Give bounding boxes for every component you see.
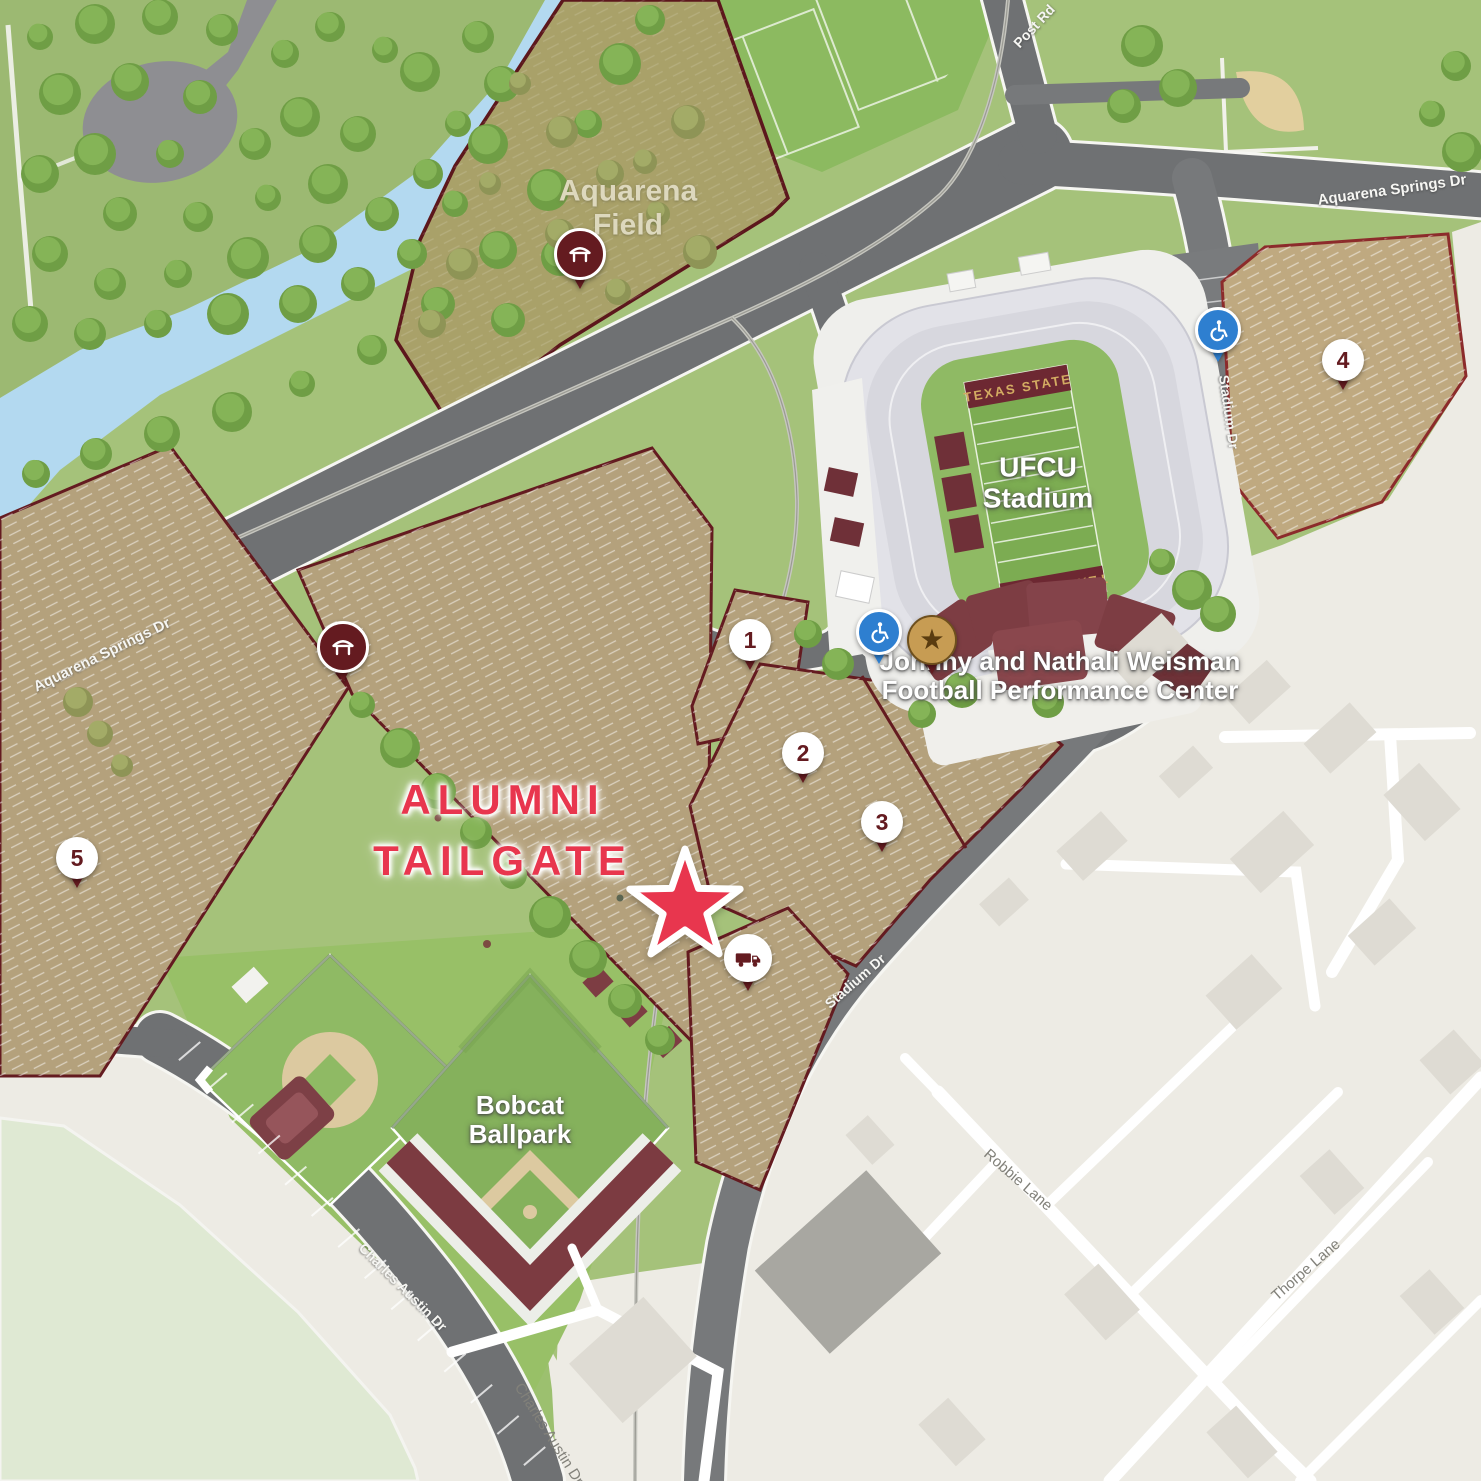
parking-pin-2-number: 2: [782, 732, 824, 774]
accessible-icon: [867, 620, 891, 644]
performance-center-label-line2: Football Performance Center: [880, 676, 1241, 705]
parking-pin-1[interactable]: 1: [729, 619, 771, 661]
alumni-tailgate-label-line2: TAILGATE: [373, 831, 633, 892]
star-icon: ★: [921, 625, 943, 655]
parking-pin-4-number: 4: [1322, 339, 1364, 381]
tent-pin-aquarena-field[interactable]: [554, 228, 606, 280]
rv-parking-pin[interactable]: [724, 934, 772, 982]
map-terrain: TEXAS STATE TEXAS STATE: [0, 0, 1481, 1481]
tent-icon: [330, 634, 356, 660]
accessible-parking-pin-east[interactable]: [1195, 307, 1241, 353]
bobcat-ballpark-label-line2: Ballpark: [469, 1120, 572, 1149]
bobcat-ballpark-label: Bobcat Ballpark: [469, 1091, 572, 1149]
tent-pin-west-lot[interactable]: [317, 621, 369, 673]
parking-pin-3[interactable]: 3: [861, 801, 903, 843]
parking-pin-3-number: 3: [861, 801, 903, 843]
parking-pin-2[interactable]: 2: [782, 732, 824, 774]
parking-pin-5-number: 5: [56, 837, 98, 879]
rv-icon: [734, 944, 762, 972]
alumni-tailgate-label-line1: ALUMNI: [373, 770, 633, 831]
campus-star-pin[interactable]: ★: [907, 615, 957, 665]
parking-pin-1-number: 1: [729, 619, 771, 661]
campus-map: TEXAS STATE TEXAS STATE: [0, 0, 1481, 1481]
tent-icon: [567, 241, 593, 267]
alumni-tailgate-label: ALUMNI TAILGATE: [373, 770, 633, 892]
parking-pin-5[interactable]: 5: [56, 837, 98, 879]
ufcu-stadium-label-line2: Stadium: [983, 483, 1093, 514]
aquarena-field-label-line1: Aquarena: [559, 174, 697, 208]
ufcu-stadium-label: UFCU Stadium: [983, 452, 1093, 515]
accessible-icon: [1206, 318, 1230, 342]
parking-pin-4[interactable]: 4: [1322, 339, 1364, 381]
accessible-parking-pin-west[interactable]: [856, 609, 902, 655]
bobcat-ballpark-label-line1: Bobcat: [469, 1091, 572, 1120]
ufcu-stadium-label-line1: UFCU: [983, 452, 1093, 483]
